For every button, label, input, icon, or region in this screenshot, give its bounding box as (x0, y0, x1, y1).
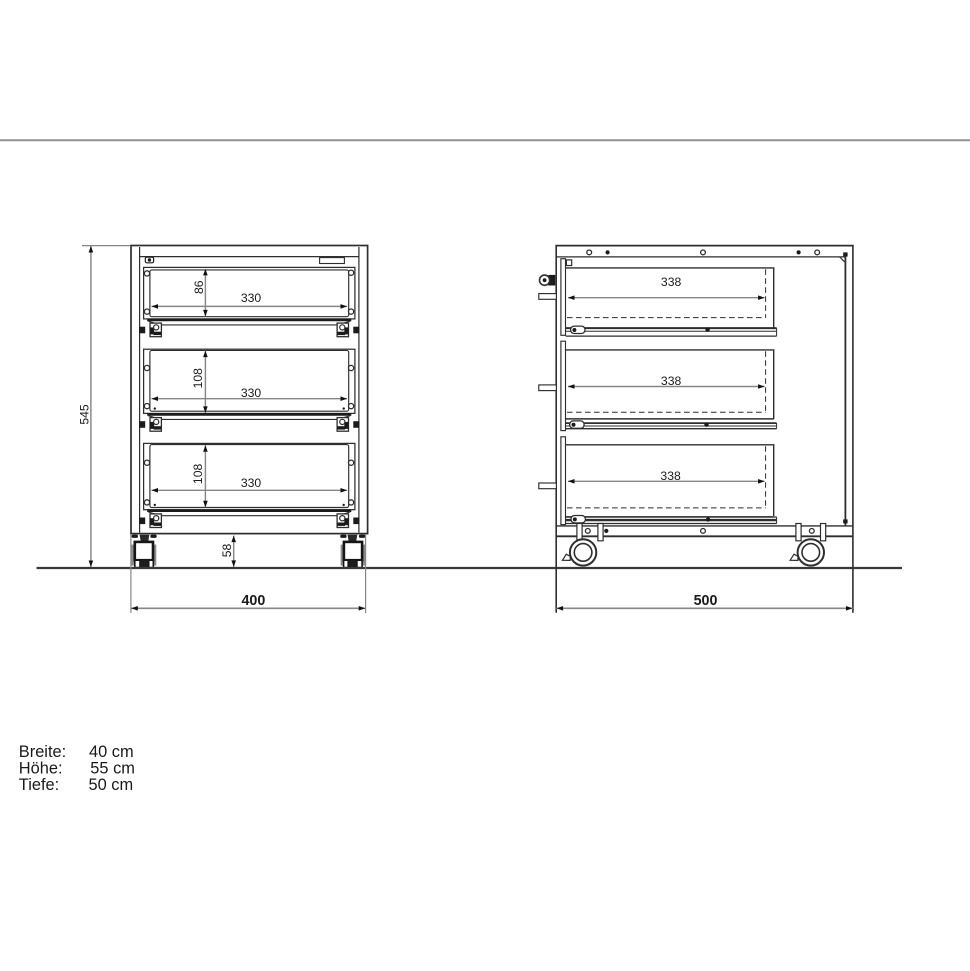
svg-text:55 cm: 55 cm (90, 760, 135, 778)
svg-text:400: 400 (241, 593, 265, 609)
svg-text:Tiefe:: Tiefe: (19, 776, 59, 794)
svg-text:338: 338 (661, 374, 682, 388)
svg-text:50 cm: 50 cm (89, 776, 134, 794)
svg-text:338: 338 (660, 469, 681, 483)
svg-text:330: 330 (241, 476, 262, 490)
svg-text:545: 545 (77, 404, 91, 425)
svg-text:86: 86 (192, 280, 206, 294)
svg-text:Höhe:: Höhe: (19, 760, 63, 778)
svg-text:338: 338 (661, 275, 682, 289)
svg-text:108: 108 (191, 368, 205, 389)
svg-text:500: 500 (694, 593, 718, 609)
svg-text:108: 108 (191, 464, 205, 485)
svg-text:58: 58 (220, 544, 234, 558)
svg-text:40 cm: 40 cm (89, 743, 134, 761)
svg-text:Breite:: Breite: (19, 743, 66, 761)
svg-text:330: 330 (241, 291, 262, 305)
svg-text:330: 330 (241, 386, 262, 400)
